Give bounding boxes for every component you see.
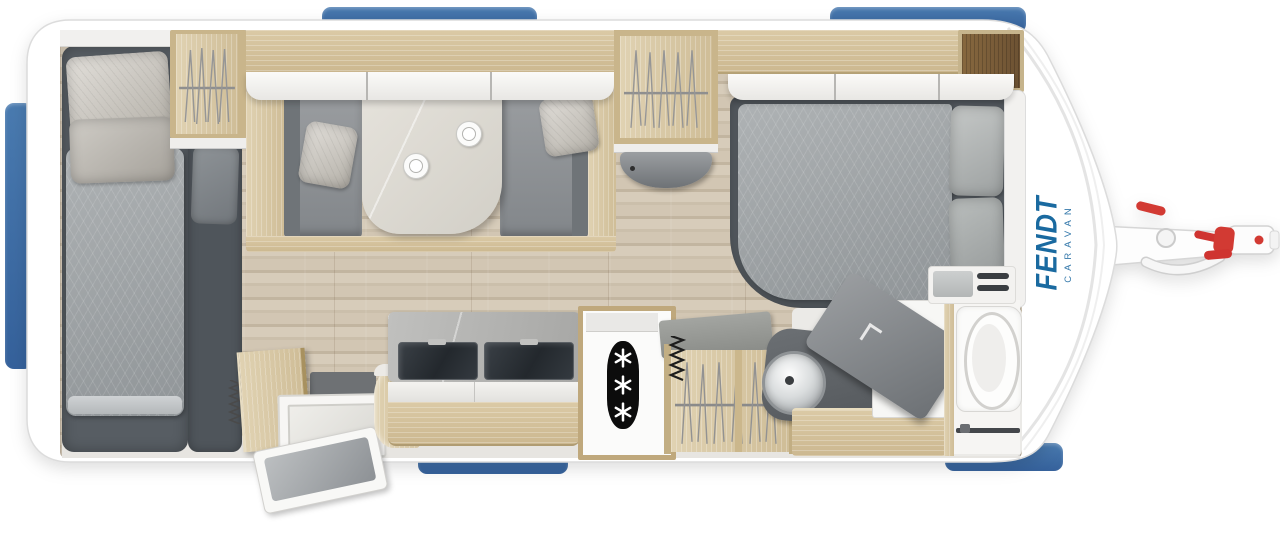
- bed-left-sheet-fold: [68, 396, 182, 414]
- bed-right-pillow-1: [949, 105, 1005, 196]
- wardrobe-mid-interior: [620, 36, 712, 138]
- snowflake-icon: [613, 348, 633, 368]
- wardrobe-mid: [614, 30, 718, 144]
- overhead-shelf-dinette: [246, 30, 616, 74]
- wardrobe-rear-shelf: [170, 138, 246, 149]
- console-knob: [630, 166, 635, 171]
- vent-slot: [977, 273, 1009, 279]
- drawer-seam: [474, 382, 475, 402]
- overhead-lockers-dinette: [246, 72, 614, 100]
- dinette-bench-left-backrest: [284, 92, 300, 238]
- dinette-table: [362, 90, 502, 234]
- bed-left-pillow-3: [191, 145, 240, 225]
- dinette-pillow-right: [538, 92, 600, 158]
- entry-door-window: [264, 437, 377, 502]
- fridge-badge: [607, 341, 639, 429]
- hob-lid-handle: [520, 339, 538, 345]
- interior: [0, 0, 1280, 534]
- sink-lid-handle: [428, 339, 446, 345]
- sink-glass-lid: [398, 342, 478, 380]
- toilet-icon: [956, 306, 1022, 412]
- bathroom-partition: [944, 298, 954, 456]
- locker-seam: [490, 72, 492, 100]
- snowflake-icon: [613, 375, 633, 395]
- washbasin-drain: [785, 376, 794, 385]
- bed-left-duvet: [66, 148, 184, 416]
- coffee-cup-inner: [409, 159, 423, 173]
- clothes-hanger-icon: [176, 34, 238, 134]
- overhead-lockers-bed: [728, 74, 1014, 100]
- washbasin-icon: [762, 351, 826, 415]
- coffee-cup-icon: [456, 121, 482, 147]
- bed-left-pillow-2: [69, 116, 175, 184]
- caravan-floorplan: FENDT CARAVAN: [0, 0, 1280, 534]
- coffee-cup-inner: [462, 127, 476, 141]
- locker-seam: [366, 72, 368, 100]
- vent-cabinet: [928, 266, 1016, 304]
- bed-right-duvet: [738, 104, 952, 300]
- dinette-seatbox-front: [246, 236, 616, 252]
- head-shelf: [60, 30, 172, 47]
- lowboard-divider: [735, 350, 742, 452]
- wardrobe-rear: [170, 30, 246, 138]
- snowflake-icon: [613, 402, 633, 422]
- toilet-lid: [972, 324, 1006, 392]
- kitchen-base: [388, 402, 580, 446]
- coffee-cup-icon: [403, 153, 429, 179]
- locker-seam: [834, 74, 836, 100]
- shower-tray-clamp: [960, 424, 970, 433]
- clothes-hanger-icon: [620, 36, 712, 138]
- vent-slot: [977, 285, 1009, 291]
- fridge-top: [586, 313, 658, 332]
- wardrobe-rear-interior: [176, 34, 238, 134]
- vent-cabinet-gray: [933, 271, 973, 297]
- shower-door-handle: [859, 323, 882, 347]
- dinette-pillow-left: [297, 120, 359, 190]
- dinette-side-panel-left: [246, 92, 284, 238]
- kitchen-drawer-front: [388, 382, 580, 402]
- hob-glass-lid: [484, 342, 574, 380]
- heater-coil: [668, 336, 686, 382]
- locker-seam: [938, 74, 940, 100]
